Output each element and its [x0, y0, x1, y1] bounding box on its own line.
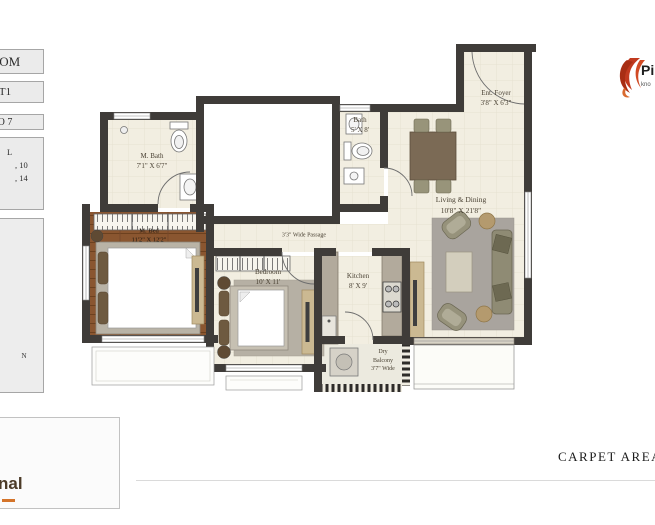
room-dims: 3'8" X 6'3" [481, 98, 512, 108]
room-dims: 5' X 8' [351, 125, 369, 135]
coffee-table [446, 252, 472, 292]
room-label-dry-balcony: Dry Balcony 3'7" Wide [371, 348, 395, 374]
balcony [414, 345, 514, 389]
room-dims: 3'7" Wide [371, 365, 395, 374]
room-dims: 11'2" X 12'2" [132, 236, 167, 245]
footer-logo-box [0, 417, 120, 509]
louver-hatch-right [402, 345, 410, 386]
bed [238, 290, 284, 346]
dining-chair [414, 119, 429, 132]
room-name: Ent. Foyer [481, 88, 512, 98]
room-label-kitchen: Kitchen 8' X 9' [347, 271, 369, 291]
pillow [98, 292, 108, 324]
room-dims: 10'8" X 21'8" [436, 206, 486, 217]
bedside-table [91, 230, 103, 242]
room-name: M. Bed [132, 227, 167, 236]
sidebar-box-levels: L , 10 , 14 [0, 137, 44, 210]
compass-north-label: N [21, 352, 26, 360]
room-label-m-bath: M. Bath 7'1" X 6'7" [137, 151, 168, 171]
room-name: Kitchen [347, 271, 369, 281]
room-name: Living & Dining [436, 195, 486, 206]
shower-icon [121, 127, 128, 134]
louver-hatch-bottom [322, 384, 402, 392]
pillow [98, 252, 108, 284]
stool [218, 277, 231, 290]
sidebar-box-tower-label: T1 [0, 86, 11, 98]
room-name: Bath [351, 115, 369, 125]
pillow [219, 320, 229, 345]
footer-divider [136, 480, 655, 481]
sidebar-levels-line2: , 10 [7, 159, 28, 172]
room-dims: 8' X 9' [347, 281, 369, 291]
room-name: Balcony [371, 357, 395, 366]
passage-label: 3'3" Wide Passage [282, 232, 326, 241]
toilet-tank [344, 142, 351, 160]
sidebar-box-unit-no-label: O 7 [0, 117, 12, 128]
chajja [226, 376, 302, 390]
washbasin [184, 179, 196, 195]
brand-tagline-top: kno [641, 82, 651, 88]
dining-table [410, 132, 456, 180]
gas-hob [383, 282, 401, 312]
floor-plan-page: OOM T1 O 7 L , 10 , 14 N [0, 0, 655, 525]
sidebar-box-unit-no: O 7 [0, 114, 44, 130]
sidebar-box-bedroom-label: OOM [0, 54, 20, 70]
sidebar-levels-line1: L [7, 146, 12, 159]
brand-accent-bar [2, 499, 15, 502]
room-label-m-bed: M. Bed 11'2" X 12'2" [132, 227, 167, 246]
stool [218, 346, 231, 359]
cushion [493, 283, 512, 302]
room-label-ent-foyer: Ent. Foyer 3'8" X 6'3" [481, 88, 512, 108]
cushion [492, 234, 511, 253]
brand-name-bottom: nal [0, 474, 23, 494]
room-name: Dry [371, 348, 395, 357]
room-dims: 7'1" X 6'7" [137, 161, 168, 171]
pillow [219, 291, 229, 316]
brand-name-top: Pi [641, 62, 654, 78]
dining-chair [436, 119, 451, 132]
room-label-bath: Bath 5' X 8' [351, 115, 369, 135]
sidebar-levels-line3: , 14 [7, 172, 28, 185]
room-label-bedroom: Bedroom 10' X 11' [255, 267, 281, 287]
sidebar-box-tower: T1 [0, 81, 44, 103]
side-table [476, 306, 492, 322]
carpet-area-label: CARPET AREA : [558, 449, 655, 465]
dining-chair [414, 180, 429, 193]
flower-bed [92, 347, 214, 385]
dining-chair [436, 180, 451, 193]
room-label-living-dining: Living & Dining 10'8" X 21'8" [436, 195, 486, 217]
toilet-tank [170, 122, 188, 129]
sidebar-box-bedroom: OOM [0, 49, 44, 74]
master-bed [108, 248, 196, 328]
sidebar-key-plan-box [0, 218, 44, 393]
room-name: Bedroom [255, 267, 281, 277]
room-name: M. Bath [137, 151, 168, 161]
room-dims: 10' X 11' [255, 277, 281, 287]
